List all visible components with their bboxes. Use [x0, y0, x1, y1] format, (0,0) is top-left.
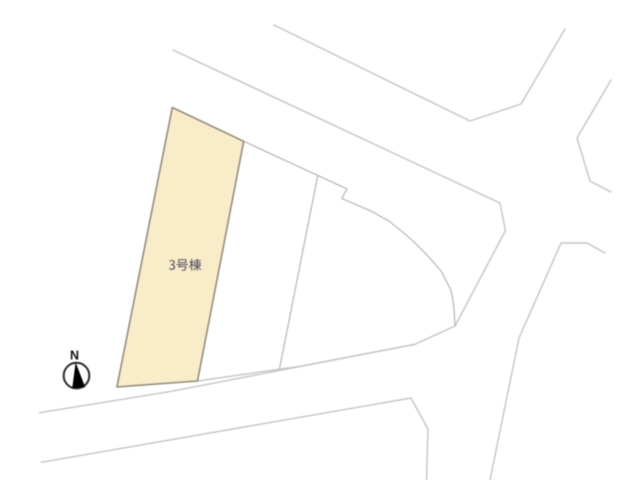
svg-text:N: N [70, 349, 79, 363]
